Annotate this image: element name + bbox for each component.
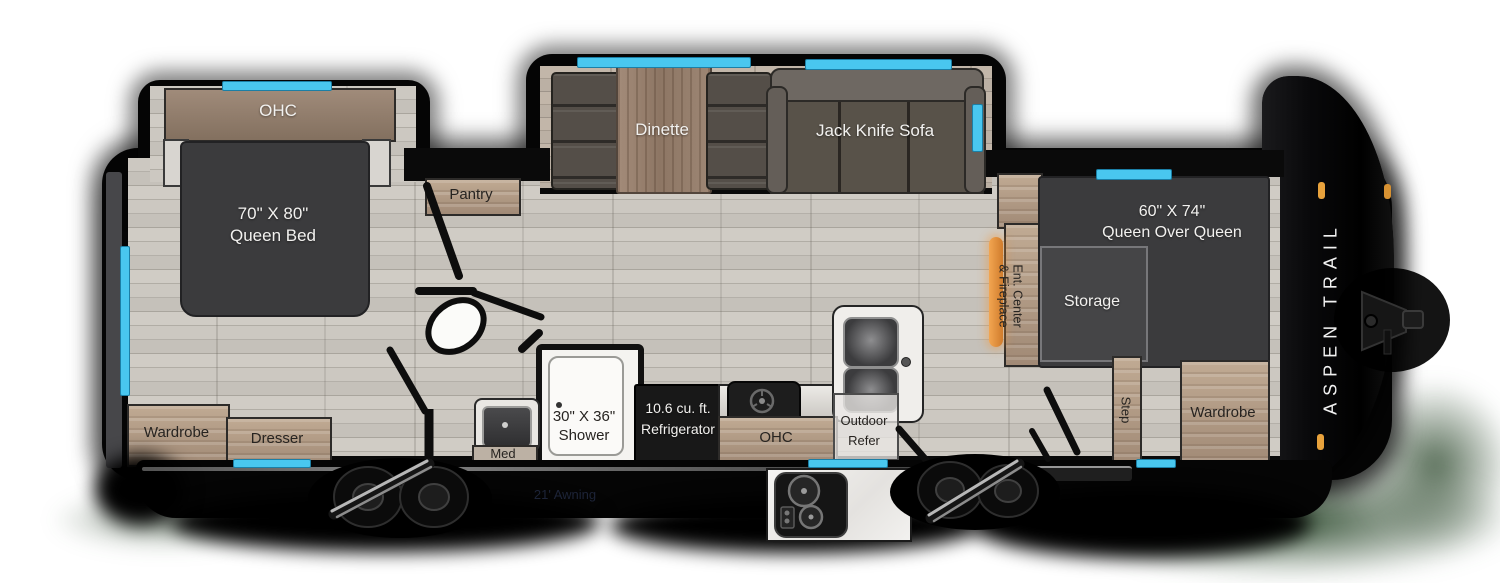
front-wardrobe-label: Wardrobe: [1180, 403, 1266, 423]
marker-light-top-right: [1384, 184, 1391, 199]
marker-light-bottom: [1317, 434, 1324, 450]
kitchen-ohc-label: OHC: [718, 428, 834, 448]
chassis-shadow-right: [970, 488, 1310, 558]
ent-center-line2: & Fireplace: [996, 221, 1010, 371]
ent-center-line1: Ent. Center: [1010, 221, 1024, 371]
outdoor-refer-label: Outdoor Refer: [831, 411, 897, 451]
sofa-label: Jack Knife Sofa: [785, 120, 965, 142]
outdoor-refer-line2: Refer: [831, 431, 897, 451]
bunk-bed-label: 60" X 74" Queen Over Queen: [1082, 202, 1262, 244]
outdoor-refer-line1: Outdoor: [831, 411, 897, 431]
window-kitchen: [808, 459, 888, 468]
outdoor-stove: [774, 472, 848, 538]
window-sofa: [805, 59, 952, 70]
sink-bowl-top: [843, 317, 899, 368]
sofa-seat: [770, 100, 984, 194]
window-bedroom-slide: [222, 81, 332, 91]
chassis-shadow-rear: [95, 455, 185, 525]
queen-bed-size: 70" X 80": [180, 203, 366, 225]
refrigerator-name: Refrigerator: [632, 419, 724, 440]
marker-light-top-left: [1318, 182, 1325, 199]
wall-top-left: [404, 148, 550, 181]
queen-bed-name: Queen Bed: [180, 225, 366, 247]
rv-floorplan: OHC 70" X 80" Queen Bed Wardrobe Dresser…: [0, 0, 1500, 583]
dinette-label: Dinette: [606, 119, 718, 141]
window-step: [1136, 459, 1176, 468]
window-sofa-side: [972, 104, 983, 152]
med-label: Med: [472, 446, 534, 463]
entry-step-rail: [1030, 466, 1132, 481]
bedroom-ohc-label: OHC: [164, 100, 392, 122]
shower-size: 30" X 36": [540, 408, 628, 427]
window-rear-side: [120, 246, 130, 396]
pantry-label: Pantry: [425, 185, 517, 205]
rear-wardrobe-label: Wardrobe: [127, 423, 226, 443]
window-dresser: [233, 459, 311, 468]
shower-label: 30" X 36" Shower: [540, 408, 628, 446]
bunk-name: Queen Over Queen: [1082, 223, 1262, 244]
sink-faucet: [901, 357, 911, 367]
refrigerator-label: 10.6 cu. ft. Refrigerator: [632, 398, 724, 440]
dresser-label: Dresser: [226, 429, 328, 449]
shower-name: Shower: [540, 427, 628, 446]
window-bunk: [1096, 169, 1172, 180]
refrigerator-size: 10.6 cu. ft.: [632, 398, 724, 419]
bunk-size: 60" X 74": [1082, 202, 1262, 223]
storage-label: Storage: [1040, 292, 1144, 313]
window-dinette: [577, 57, 751, 68]
vanity-faucet: [502, 422, 508, 428]
awning-label: 21' Awning: [495, 487, 635, 504]
queen-bed-label: 70" X 80" Queen Bed: [180, 203, 366, 247]
